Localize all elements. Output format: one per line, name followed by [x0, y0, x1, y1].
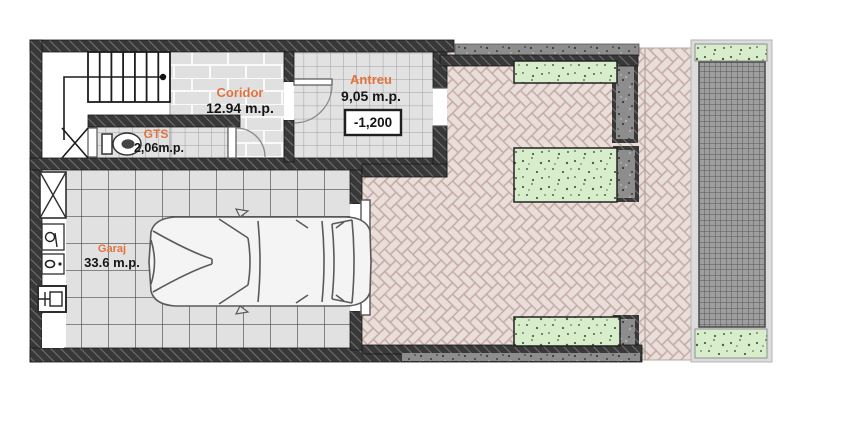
room-name-antreu: Antreu — [350, 72, 392, 87]
concrete-strip-bottom — [402, 353, 640, 361]
planter — [514, 61, 617, 83]
planter — [695, 329, 767, 358]
room-area-garaj: 33.6 m.p. — [84, 255, 140, 270]
outlet-icon — [42, 254, 64, 274]
floor-plan-page: Coridor 12.94 m.p. Antreu 9,05 m.p. -1,2… — [0, 0, 850, 434]
electrical-panel-icon — [38, 286, 66, 312]
door-opening — [433, 88, 447, 126]
room-area-gts: 2,06m.p. — [134, 141, 184, 155]
door-leaf — [228, 127, 236, 158]
level-annotation: -1,200 — [354, 115, 392, 130]
wall-gts-top — [88, 115, 240, 127]
door-leaf — [294, 79, 332, 85]
wall-coridor-antreu — [284, 52, 294, 82]
room-name-garaj: Garaj — [98, 243, 126, 255]
room-area-coridor: 12.94 m.p. — [206, 100, 274, 116]
wall-garage-right — [350, 170, 362, 204]
concrete-pillar — [616, 60, 634, 139]
walkline-end-dot — [160, 74, 166, 80]
shaft-x-icon — [40, 172, 66, 218]
garage-fixtures — [38, 172, 66, 348]
drain-icon — [42, 224, 64, 250]
antreu-floor — [294, 52, 433, 158]
side-grating-strip — [691, 40, 772, 362]
planter — [514, 148, 617, 202]
planter — [695, 44, 767, 61]
room-area-antreu: 9,05 m.p. — [341, 88, 401, 104]
car-top-view-icon — [149, 209, 371, 314]
grating-grid — [699, 62, 765, 327]
door-opening — [284, 82, 294, 120]
service-strip-end — [42, 314, 64, 348]
planter — [514, 317, 620, 346]
wall-coridor-antreu — [284, 120, 294, 162]
concrete-strip-top — [455, 44, 639, 56]
room-name-gts: GTS — [144, 127, 169, 141]
room-name-coridor: Coridor — [217, 85, 264, 100]
wall-garage-right — [350, 311, 362, 350]
wall-top — [30, 40, 454, 52]
door-leaf — [88, 128, 97, 157]
concrete-pillar — [617, 150, 635, 198]
wall-garage-front — [362, 164, 447, 177]
floor-plan-canvas: Coridor 12.94 m.p. Antreu 9,05 m.p. -1,2… — [0, 0, 850, 434]
